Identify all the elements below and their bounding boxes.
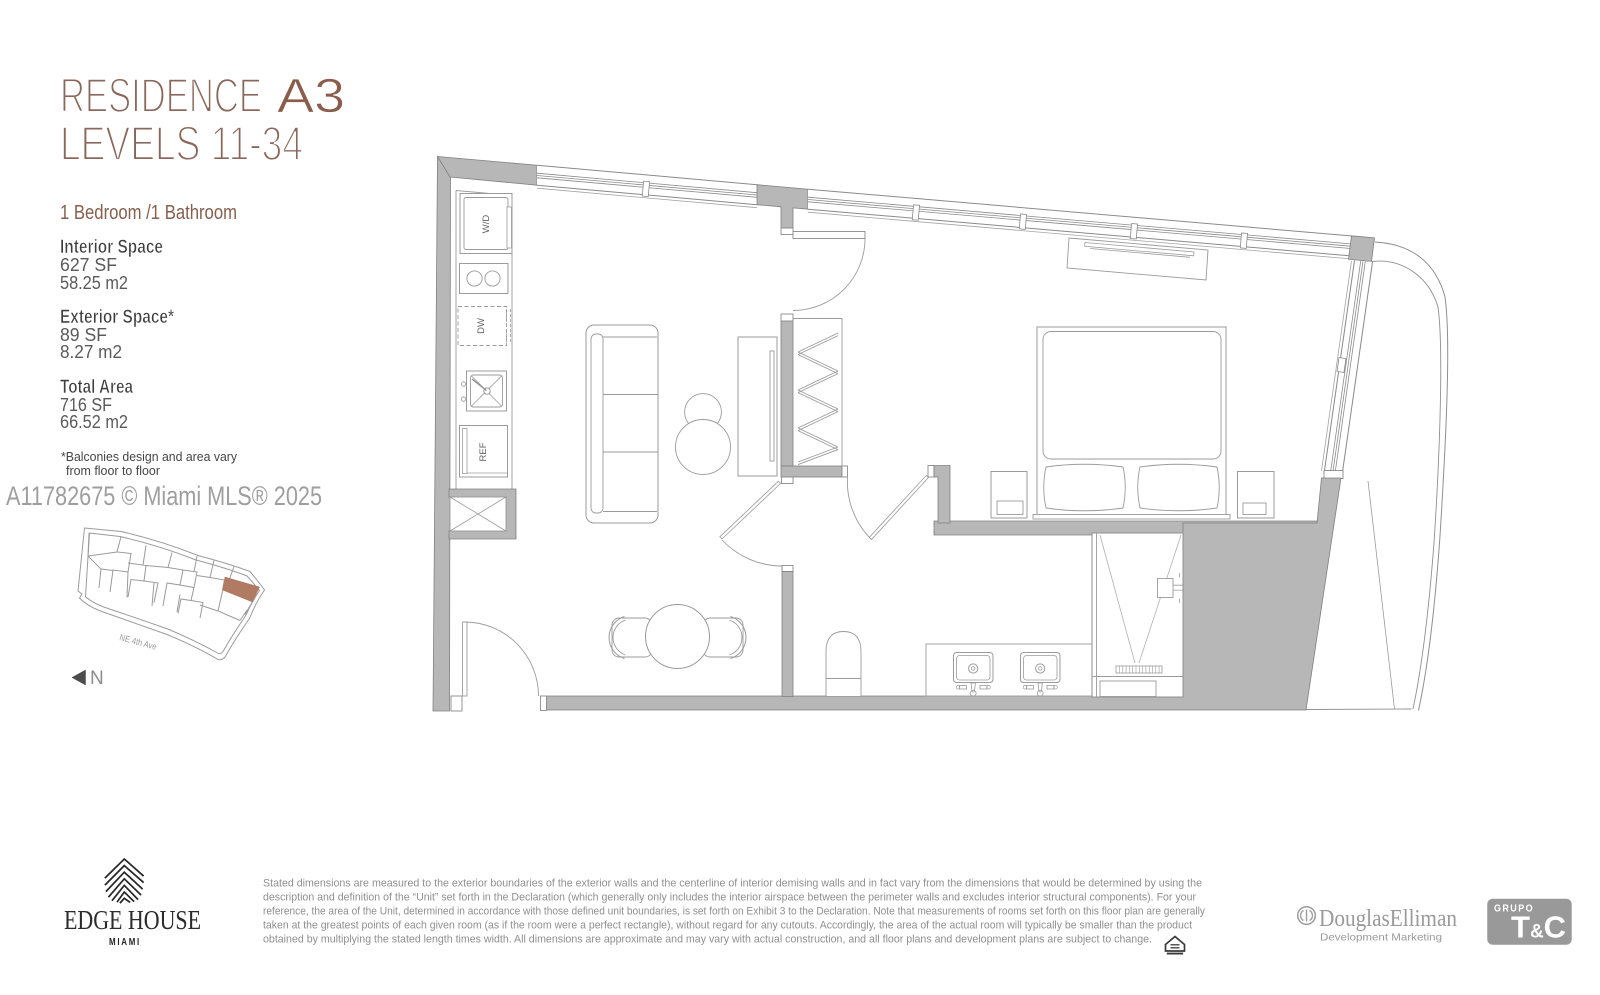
svg-text:DW: DW [476, 318, 487, 334]
svg-text:*Balconies design and area var: *Balconies design and area vary [61, 450, 238, 464]
svg-text:REF: REF [478, 442, 489, 461]
svg-text:MIAMI: MIAMI [109, 937, 141, 948]
svg-text:A11782675 © Miami MLS® 2025: A11782675 © Miami MLS® 2025 [6, 481, 322, 511]
svg-text:A3: A3 [277, 70, 345, 123]
svg-text:reference, the area of the Uni: reference, the area of the Unit, determi… [263, 906, 1206, 918]
svg-text:from floor to floor: from floor to floor [66, 464, 160, 478]
svg-text:Stated dimensions are measured: Stated dimensions are measured to the ex… [263, 878, 1202, 890]
svg-text:627 SF: 627 SF [60, 255, 117, 275]
svg-text:taken at the greatest points o: taken at the greatest points of each giv… [263, 920, 1192, 932]
svg-text:1 Bedroom /1 Bathroom: 1 Bedroom /1 Bathroom [60, 202, 237, 224]
svg-text:8.27 m2: 8.27 m2 [60, 342, 122, 362]
svg-text:66.52 m2: 66.52 m2 [60, 412, 128, 432]
svg-text:obtained by multiplying the st: obtained by multiplying the stated lengt… [263, 934, 1152, 946]
svg-text:58.25 m2: 58.25 m2 [60, 273, 128, 293]
svg-text:N: N [90, 668, 104, 689]
svg-text:RESIDENCE: RESIDENCE [60, 70, 262, 123]
svg-text:LEVELS 11-34: LEVELS 11-34 [60, 118, 303, 171]
svg-text:W/D: W/D [481, 215, 492, 234]
svg-text:DouglasElliman: DouglasElliman [1319, 906, 1457, 932]
svg-text:Development Marketing: Development Marketing [1320, 932, 1442, 944]
svg-text:description and definition of: description and definition of the “Unit”… [263, 892, 1196, 904]
svg-text:EDGE HOUSE: EDGE HOUSE [64, 905, 201, 935]
